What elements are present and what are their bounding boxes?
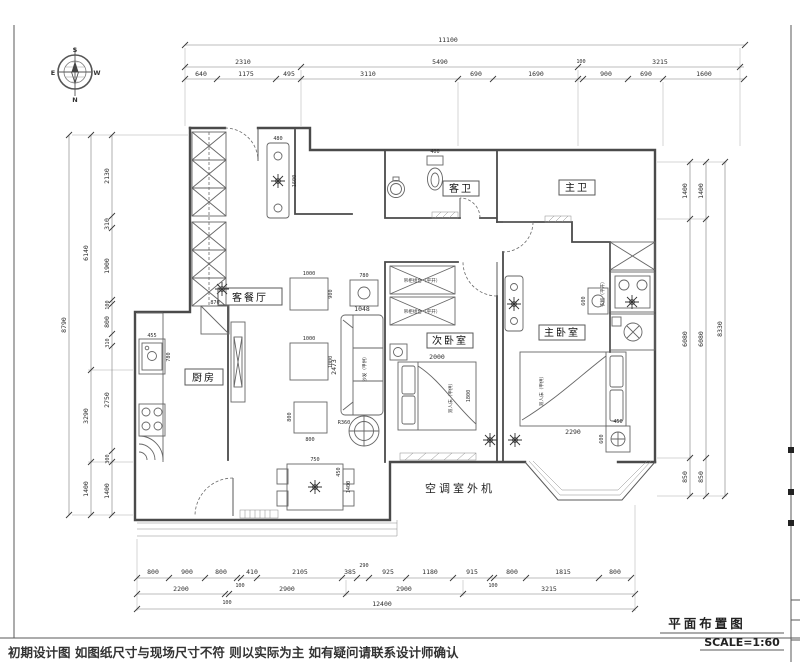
radiator: [240, 510, 278, 518]
dim-table1-width: 1000: [303, 271, 316, 277]
dim-top: 690: [470, 70, 482, 78]
side-table-1: 1000 900: [290, 271, 334, 310]
dim-bottom: 800: [506, 568, 518, 576]
dim-left: 3290: [82, 408, 90, 424]
dim-bottom: 2200: [173, 585, 189, 593]
dim-bottom: 800: [609, 568, 621, 576]
dim-bottom: 3215: [541, 585, 557, 593]
room-label-living-dining: 客餐厅: [218, 288, 282, 305]
corridor-console: [505, 276, 523, 331]
closet-cell-label: 吊柜组合（平开）: [404, 308, 441, 315]
dim-bottom: 410: [246, 568, 258, 576]
second-bedroom-closet: 吊柜组合（平开） 吊柜组合（平开）: [390, 266, 455, 325]
sheet-frame: [0, 25, 800, 662]
room-label-kitchen: 厨房: [185, 369, 223, 385]
dim-bottom: 925: [382, 568, 394, 576]
dim-top: 1690: [528, 70, 544, 78]
master-bedroom-door: [503, 222, 533, 252]
side-table-3: 800 800: [287, 402, 327, 443]
dim-top: 640: [195, 70, 207, 78]
room-label-second-bedroom: 次卧室: [427, 333, 473, 348]
svg-text:厨房: 厨房: [192, 371, 216, 384]
dim-left: 1900: [103, 258, 111, 274]
sofa: 1048 2473 沙发（甲供）: [330, 305, 383, 415]
dim-left: 310: [105, 338, 111, 347]
dim-top-total: 11100: [438, 36, 458, 44]
bed-label: 双人床（甲供）: [447, 381, 454, 413]
drawing-title: 平面布置图: [668, 616, 746, 631]
dim-left: 800: [103, 316, 111, 328]
dim-console-depth: 1600: [292, 175, 298, 188]
compass-west: W: [93, 69, 100, 77]
dim-right: 6080: [697, 331, 705, 347]
dim-sink-width: 455: [147, 333, 156, 339]
washing-machine: [610, 314, 655, 350]
double-basin-unit: [610, 272, 655, 312]
dim-chain-top: 11100 2310 5490 3215 640 1175 495 3110 6…: [182, 36, 748, 82]
dim-left: 1400: [82, 481, 90, 497]
round-rug: R360: [338, 416, 379, 446]
dim-right: 850: [697, 471, 705, 483]
dim-dining-chair: 450: [336, 467, 342, 476]
dim-left: 310: [103, 218, 111, 230]
master-nightstand-bottom: 450 600: [599, 419, 630, 452]
dim-left: 100: [105, 300, 111, 309]
room-label-master-bedroom: 主卧室: [539, 325, 585, 340]
dim-bottom: 915: [466, 568, 478, 576]
dim-top: 1600: [696, 70, 712, 78]
master-bed: 2290 双人床（甲供）: [520, 352, 626, 436]
room-labels: 客餐厅 厨房 客卫 主卫 次卧室 主卧室 空调室外机: [185, 180, 595, 495]
floor-plan-drawing: S N E W 11100 2310 5490 3215 640 1175 49…: [0, 0, 800, 662]
second-bedroom-bed: 2000 1800 双人床（甲供）: [398, 353, 476, 430]
dim-console-width: 480: [273, 136, 282, 142]
second-bedroom-door: [463, 262, 497, 296]
dim-dining-length: 1400: [346, 481, 352, 494]
compass-south: S: [73, 46, 78, 54]
dim-right-total: 8330: [716, 321, 724, 337]
dim-top: 5490: [432, 58, 448, 66]
entry-door: [225, 128, 258, 161]
dim-right: 1400: [697, 183, 705, 199]
dim-right: 1400: [681, 183, 689, 199]
compass-east: E: [51, 69, 55, 77]
dim-bottom: 1180: [422, 568, 438, 576]
svg-text:客卫: 客卫: [449, 182, 473, 195]
dim-left: 6140: [82, 245, 90, 261]
svg-text:主卧室: 主卧室: [544, 326, 580, 339]
dim-table3-width: 800: [305, 437, 314, 443]
dim-bottom: 900: [181, 568, 193, 576]
dim-chain-left: 8790 6140 3290 1400 2130 310 1900 100 80…: [60, 132, 115, 518]
svg-text:客餐厅: 客餐厅: [232, 291, 268, 304]
dim-bottom-total: 12400: [372, 600, 392, 608]
dim-left-total: 8790: [60, 317, 68, 333]
footer: 初期设计图 如图纸尺寸与现场尺寸不符 则以实际为主 如有疑问请联系设计师确认: [8, 645, 459, 660]
dim-left: 1400: [103, 483, 111, 499]
dim-nightstand-width: 450: [613, 419, 622, 425]
rug-radius-label: R360: [338, 420, 351, 426]
dim-chain-bottom: 800 900 800 100 410 2105 385 290 925 118…: [134, 563, 638, 612]
guest-bath-door: [460, 198, 480, 218]
entry-closets: [192, 132, 226, 306]
dim-bottom: 290: [359, 563, 368, 569]
dim-table2-width: 1000: [303, 336, 316, 342]
floor-plan-sheet: S N E W 11100 2310 5490 3215 640 1175 49…: [0, 0, 800, 662]
dim-bottom: 2105: [292, 568, 308, 576]
bed-label: 双人床（甲供）: [538, 374, 545, 406]
dim-nightstand-depth: 600: [599, 434, 605, 443]
dim-right: 6080: [681, 331, 689, 347]
svg-text:次卧室: 次卧室: [432, 334, 468, 347]
closet-cell-label: 吊柜组合（平开）: [404, 277, 441, 284]
dim-top: 690: [640, 70, 652, 78]
stove: [139, 404, 165, 460]
dim-bottom: 100: [235, 583, 244, 589]
bedroom-window-sill: [400, 453, 476, 460]
room-label-ac-unit: 空调室外机: [425, 481, 495, 495]
lamp-table: 780: [350, 273, 378, 306]
dim-right: 850: [681, 471, 689, 483]
extension-lines: [72, 48, 740, 611]
dim-bottom: 2900: [396, 585, 412, 593]
room-label-master-bath: 主卫: [559, 180, 595, 195]
kitchen-sink: 455 780: [139, 333, 172, 374]
dim-dining-width: 750: [310, 457, 319, 463]
dim-top: 495: [283, 70, 295, 78]
dim-top: 100: [576, 59, 585, 65]
dim-bottom: 100: [488, 583, 497, 589]
sofa-label: 沙发（甲供）: [361, 354, 368, 382]
dim-bed1-width: 2290: [565, 428, 581, 436]
second-bedroom-nightstand: [390, 344, 407, 360]
toilet: 400: [427, 149, 443, 190]
title-block: 平面布置图 SCALE=1:60: [660, 616, 784, 650]
dim-table3-depth: 800: [287, 412, 293, 421]
dim-bottom: 2900: [279, 585, 295, 593]
master-closet-label: 衣柜（平开）: [599, 279, 606, 307]
bay-window: [525, 461, 655, 500]
dim-lamp-table: 780: [359, 273, 368, 279]
svg-text:主卫: 主卫: [565, 182, 589, 194]
dining-set: 750 1400 450: [277, 457, 354, 510]
balcony-door: [195, 478, 233, 516]
dim-left: 2750: [103, 392, 111, 408]
compass-rose: S N E W: [51, 46, 101, 104]
dim-top: 3110: [360, 70, 376, 78]
dim-top: 3215: [652, 58, 668, 66]
dim-bed2-width: 2000: [429, 353, 445, 361]
side-table-2: 1000 1000: [290, 336, 334, 380]
dim-table1-depth: 900: [328, 289, 334, 298]
dim-bottom: 385: [344, 568, 356, 576]
dim-toilet: 400: [430, 149, 439, 155]
dim-top: 1175: [238, 70, 254, 78]
dim-bed2-depth: 1800: [466, 390, 472, 403]
compass-north: N: [72, 96, 77, 104]
dim-chain-right: 1400 6080 850 1400 6080 850 8330: [681, 159, 728, 499]
tv-cabinet: [231, 322, 245, 402]
dim-nightstand2: 600: [581, 296, 587, 305]
guest-bath-fixtures: 400: [388, 149, 444, 198]
balcony-band: [137, 510, 397, 536]
dim-bottom: 800: [147, 568, 159, 576]
dim-top: 2310: [235, 58, 251, 66]
title-block-sliver: [791, 600, 800, 640]
room-label-guest-bath: 客卫: [443, 181, 479, 196]
doors: [195, 128, 533, 516]
dim-bottom: 800: [215, 568, 227, 576]
dim-left: 300: [105, 454, 111, 463]
kitchen-fittings: 455 780: [137, 313, 172, 462]
drawing-scale: SCALE=1:60: [704, 636, 780, 649]
dim-left: 2130: [103, 168, 111, 184]
wash-basin: [388, 177, 405, 198]
disclaimer-note: 初期设计图 如图纸尺寸与现场尺寸不符 则以实际为主 如有疑问请联系设计师确认: [8, 645, 459, 660]
dim-table2-depth: 1000: [328, 356, 334, 369]
entry-console: 480 1600: [267, 136, 298, 218]
dim-bottom: 100: [222, 600, 231, 606]
master-closet-column: 衣柜（平开）: [599, 242, 655, 350]
dim-bottom: 1815: [555, 568, 571, 576]
dim-sink-depth: 780: [166, 352, 172, 361]
dim-top: 900: [600, 70, 612, 78]
